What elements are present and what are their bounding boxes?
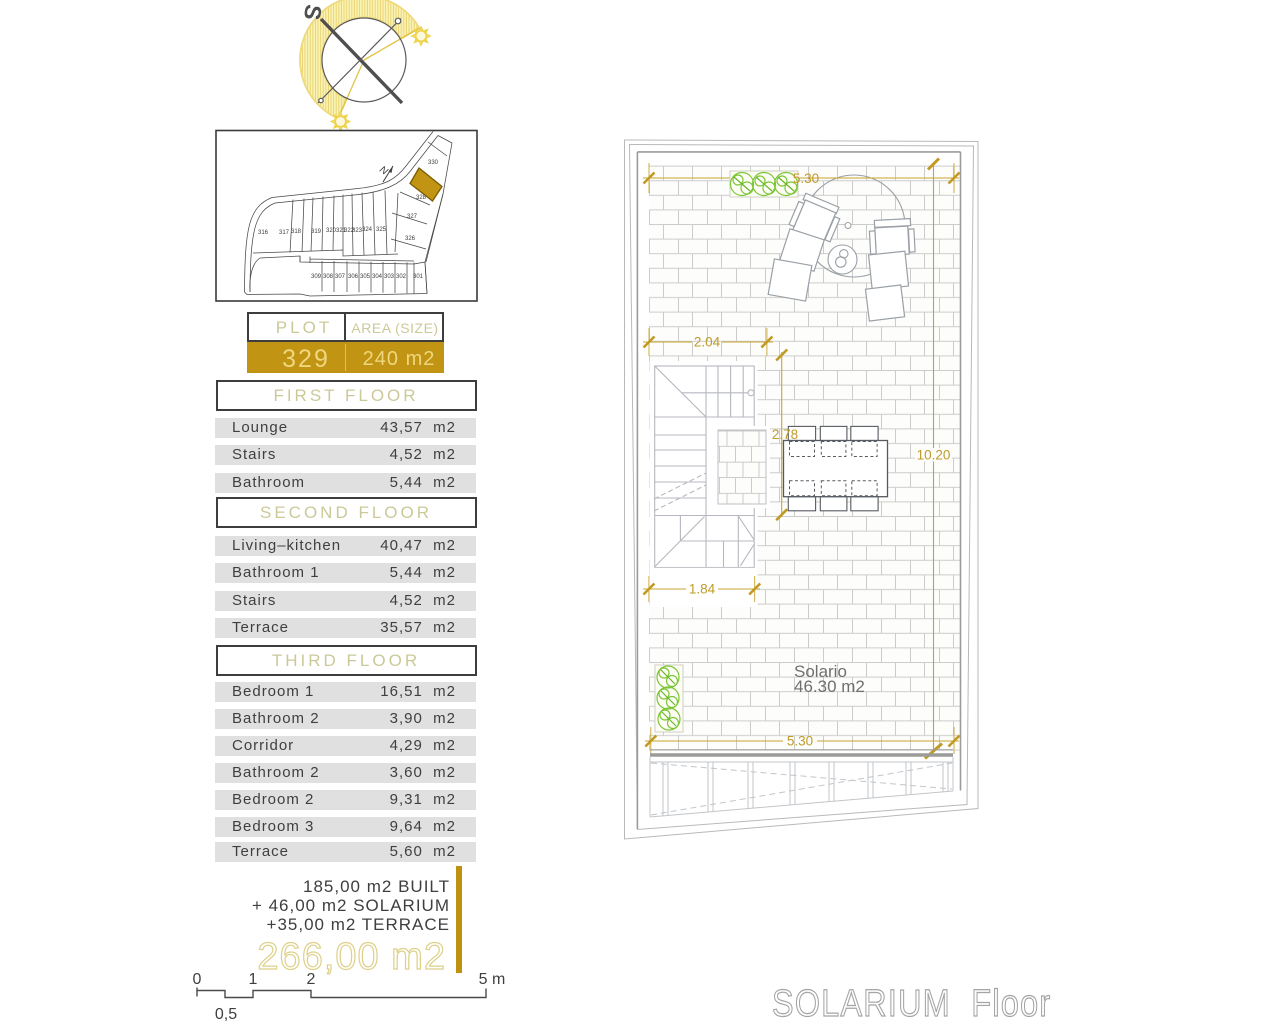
svg-text:1.84: 1.84 (689, 582, 716, 597)
svg-text:5 m: 5 m (479, 971, 506, 988)
svg-text:325: 325 (376, 227, 387, 233)
svg-text:1: 1 (249, 971, 258, 988)
svg-text:324: 324 (362, 227, 373, 233)
svg-text:S: S (299, 3, 327, 23)
svg-text:5.30: 5.30 (787, 734, 813, 749)
svg-text:319: 319 (311, 229, 322, 235)
svg-text:46.30 m2: 46.30 m2 (794, 677, 865, 696)
svg-text:302: 302 (396, 274, 407, 280)
svg-text:307: 307 (335, 274, 346, 280)
svg-text:308: 308 (323, 274, 334, 280)
svg-text:318: 318 (291, 229, 302, 235)
svg-text:316: 316 (258, 230, 269, 236)
svg-text:327: 327 (407, 214, 418, 220)
svg-text:304: 304 (372, 274, 383, 280)
svg-text:328: 328 (416, 195, 427, 201)
svg-text:0: 0 (193, 971, 202, 988)
svg-text:0,5: 0,5 (215, 1006, 237, 1023)
svg-text:2.78: 2.78 (772, 427, 798, 442)
svg-text:303: 303 (384, 274, 395, 280)
svg-text:2: 2 (307, 971, 316, 988)
svg-text:317: 317 (279, 230, 290, 236)
svg-text:306: 306 (348, 274, 359, 280)
svg-text:326: 326 (405, 236, 416, 242)
svg-text:2.04: 2.04 (694, 335, 721, 350)
svg-text:305: 305 (360, 274, 371, 280)
svg-text:301: 301 (413, 274, 424, 280)
svg-text:5.30: 5.30 (793, 171, 819, 186)
svg-text:330: 330 (428, 160, 439, 166)
svg-text:10.20: 10.20 (917, 448, 951, 463)
svg-text:309: 309 (311, 274, 322, 280)
